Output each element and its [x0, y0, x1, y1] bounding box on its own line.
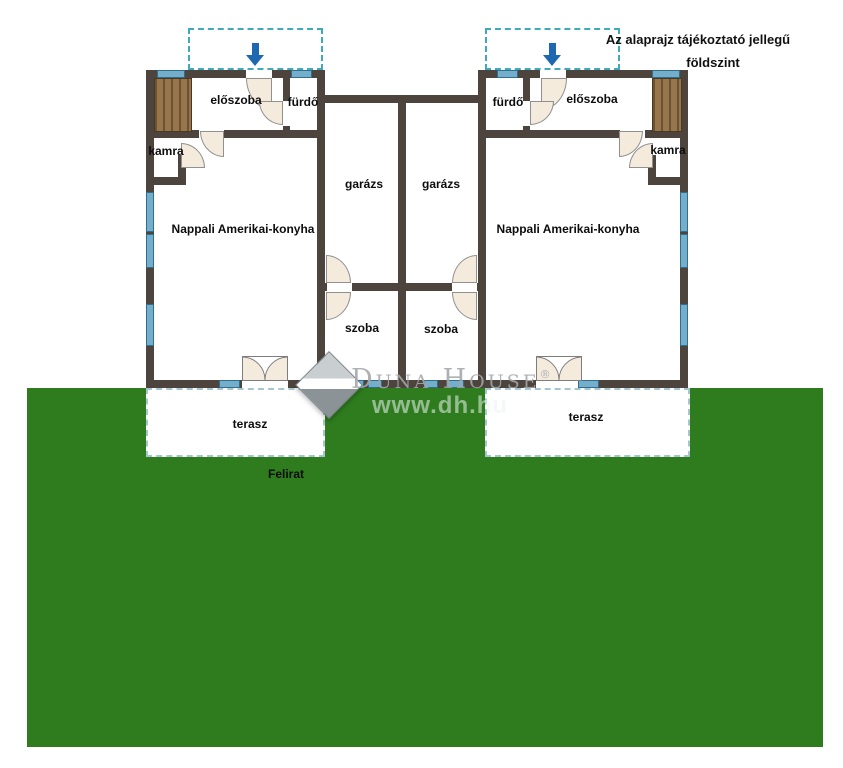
room-label-furdo-right: fürdő — [493, 95, 524, 109]
door-opening — [523, 101, 530, 126]
window — [146, 192, 154, 232]
stairs-left — [154, 78, 192, 132]
door-opening — [246, 70, 272, 78]
annotation-line2: földszint — [686, 55, 739, 70]
down-arrow-icon — [543, 43, 561, 66]
wall — [398, 103, 406, 388]
wall — [146, 177, 186, 185]
window — [157, 70, 185, 78]
wall — [648, 177, 688, 185]
room-label-szoba-right: szoba — [424, 322, 458, 336]
window — [146, 304, 154, 346]
registered-mark: ® — [540, 368, 551, 381]
door-opening — [540, 70, 566, 78]
window — [146, 234, 154, 268]
room-label-eloszoba-left: előszoba — [210, 93, 261, 107]
window — [291, 70, 312, 78]
stairs-right — [652, 78, 682, 132]
window — [680, 192, 688, 232]
window — [497, 70, 518, 78]
watermark-brand: Duna House® — [351, 364, 551, 395]
french-door-left — [242, 356, 288, 381]
door-opening — [327, 283, 352, 291]
room-label-kamra-right: kamra — [650, 143, 685, 157]
caption-label: Felirat — [268, 467, 304, 481]
wall — [325, 95, 478, 103]
window — [219, 380, 240, 388]
annotation-line1: Az alaprajz tájékoztató jellegű — [606, 32, 790, 47]
room-label-garazs-left: garázs — [345, 177, 383, 191]
window — [680, 304, 688, 346]
down-arrow-icon — [246, 43, 264, 66]
wall — [317, 70, 325, 388]
door-opening — [452, 283, 477, 291]
room-label-nappali-right: Nappali Amerikai-konyha — [497, 222, 640, 236]
wall — [485, 130, 680, 138]
terrace-left-label: terasz — [233, 417, 268, 431]
floor-plan-canvas: terasz terasz Felirat — [0, 0, 843, 768]
room-label-kamra-left: kamra — [148, 144, 183, 158]
room-label-eloszoba-right: előszoba — [566, 92, 617, 106]
room-label-nappali-left: Nappali Amerikai-konyha — [172, 222, 315, 236]
room-label-furdo-left: fürdő — [288, 95, 319, 109]
window — [652, 70, 680, 78]
room-label-szoba-left: szoba — [345, 321, 379, 335]
window — [680, 234, 688, 268]
watermark-url: www.dh.hu — [372, 392, 508, 420]
terrace-right-label: terasz — [569, 410, 604, 424]
window — [578, 380, 599, 388]
room-label-garazs-right: garázs — [422, 177, 460, 191]
door-opening — [242, 380, 288, 388]
wall — [478, 70, 486, 388]
